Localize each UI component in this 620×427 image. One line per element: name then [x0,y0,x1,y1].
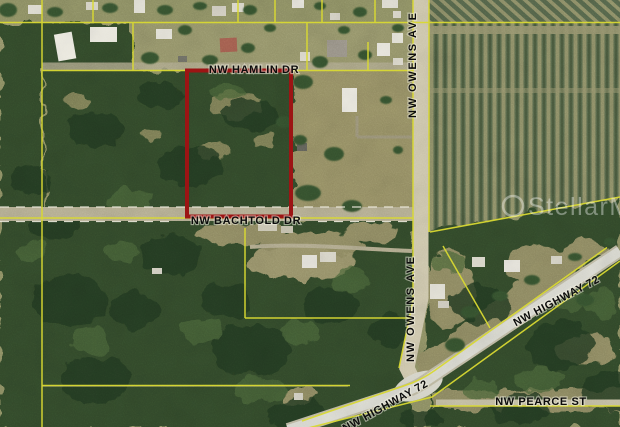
mls-aerial-map: NW HAMLIN DR NW BACHTOLD DR NW OWENS AVE… [0,0,620,427]
road-label-hamlin: NW HAMLIN DR [209,64,299,76]
road-label-bachtold: NW BACHTOLD DR [191,215,301,227]
road-label-owens-north: NW OWENS AVE [407,11,419,118]
watermark-text: StellarMLS [528,193,620,221]
road-label-owens-south: NW OWENS AVE [405,255,417,362]
road-label-pearce: NW PEARCE ST [495,396,587,408]
aerial-photo: NW HAMLIN DR NW BACHTOLD DR NW OWENS AVE… [0,0,620,427]
